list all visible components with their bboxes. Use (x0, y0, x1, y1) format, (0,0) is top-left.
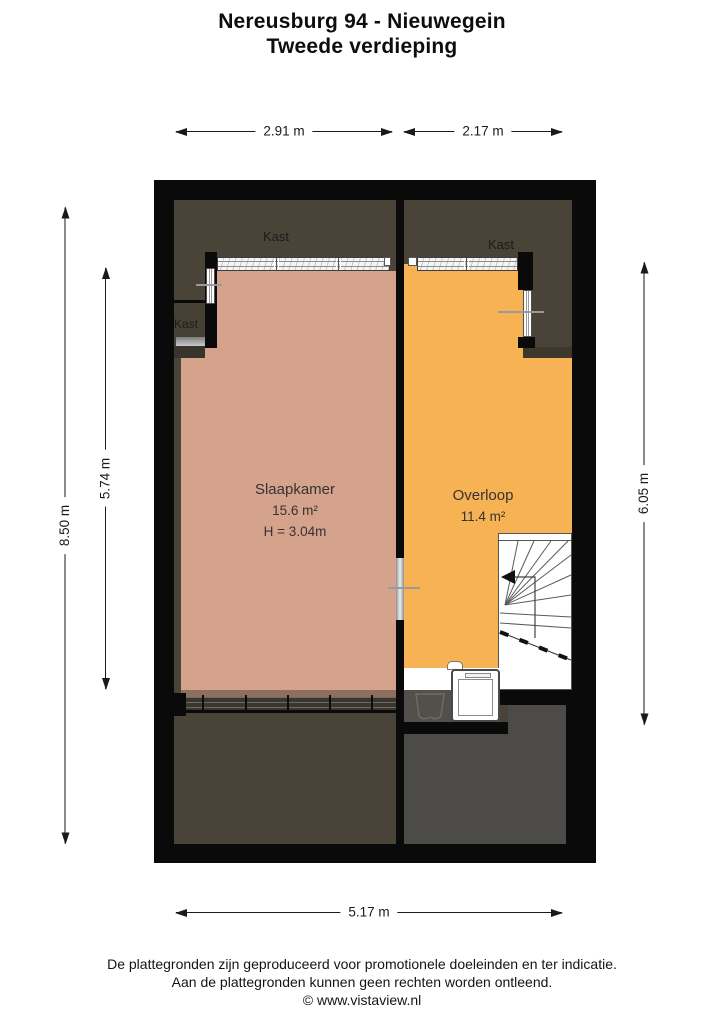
arrow-left-icon (403, 128, 415, 136)
wall-under-niche (404, 722, 508, 734)
arrow-right-icon (551, 128, 563, 136)
page-title-line2: Tweede verdieping (0, 34, 724, 59)
window-mullion (329, 695, 331, 712)
floor-plan: Kast Kast Kast Slaapkamer 15.6 m² H = 3.… (154, 180, 596, 863)
closet-side-left-shadow (174, 346, 205, 358)
arrow-left-icon (175, 128, 187, 136)
floor-plan-interior: Kast Kast Kast Slaapkamer 15.6 m² H = 3.… (174, 200, 572, 844)
knee-wall-window-band (186, 697, 396, 713)
window-mullion (371, 695, 373, 712)
storage-floor-right (508, 705, 566, 844)
closet-door-divider (276, 258, 277, 270)
dimension-label: 2.17 m (454, 124, 511, 139)
closet-strip-end-cap (384, 257, 391, 266)
washing-machine-panel (465, 673, 491, 678)
stairs-drawing (498, 533, 572, 690)
room-overloop-label: Overloop 11.4 m² (403, 486, 563, 527)
dimension-label: 2.91 m (255, 124, 312, 139)
storage-floor-left (404, 734, 508, 844)
roof-edge-shadow (523, 347, 572, 358)
wall-under-stairs (500, 690, 572, 705)
washing-machine (451, 669, 500, 722)
arrow-left-icon (102, 678, 110, 690)
room-ceiling-height: H = 3.04m (215, 521, 375, 542)
footer-copyright: © www.vistaview.nl (0, 991, 724, 1009)
window-mullion (245, 695, 247, 712)
arrow-left-icon (61, 833, 69, 845)
dimension-label: 6.05 m (636, 465, 651, 522)
page-title: Nereusburg 94 - Nieuwegein Tweede verdie… (0, 9, 724, 59)
closet-doors-top-right (417, 257, 518, 271)
inner-wall-right (566, 705, 572, 844)
stairs (498, 533, 572, 690)
dimension-top-right: 2.17 m (403, 123, 563, 140)
closet-top-right-label: Kast (471, 237, 531, 252)
room-area: 11.4 m² (403, 506, 563, 527)
closet-door-divider (466, 258, 467, 270)
arrow-right-icon (551, 909, 563, 917)
arrow-right-icon (61, 207, 69, 219)
room-name: Overloop (403, 486, 563, 506)
dimension-left-inner: 5.74 m (97, 267, 114, 690)
wall-right-upper (518, 252, 533, 290)
room-area: 15.6 m² (215, 500, 375, 521)
arrow-right-icon (102, 267, 110, 279)
arrow-left-icon (640, 714, 648, 726)
door-opening (396, 558, 404, 620)
room-slaapkamer-label: Slaapkamer 15.6 m² H = 3.04m (215, 480, 375, 542)
room-overloop-upper (404, 264, 523, 347)
band-end-cap (174, 693, 186, 716)
dimension-label: 5.17 m (340, 905, 397, 920)
closet-strip-end-cap (408, 257, 417, 266)
window-right (523, 290, 532, 337)
dimension-left-outer: 8.50 m (57, 207, 74, 845)
footer-line1: De plattegronden zijn geproduceerd voor … (0, 955, 724, 973)
door-centre-tick (388, 587, 420, 589)
footer-line2: Aan de plattegronden kunnen geen rechten… (0, 973, 724, 991)
closet-top-left-label: Kast (246, 229, 306, 244)
dimension-label: 5.74 m (98, 450, 113, 507)
closet-door-divider (338, 258, 339, 270)
room-slaapkamer-upper (217, 271, 396, 348)
wall-right-corner (518, 337, 535, 348)
arrow-right-icon (640, 262, 648, 274)
dimension-top-left: 2.91 m (175, 123, 393, 140)
page-title-line1: Nereusburg 94 - Nieuwegein (0, 9, 724, 34)
arrow-left-icon (175, 909, 187, 917)
dimension-right: 6.05 m (636, 262, 653, 726)
closet-side-left-label: Kast (174, 317, 212, 331)
dimension-label: 8.50 m (57, 497, 72, 554)
footer-disclaimer: De plattegronden zijn geproduceerd voor … (0, 955, 724, 1009)
arrow-right-icon (381, 128, 393, 136)
window-left (206, 268, 215, 304)
closet-doors-top-left (217, 257, 390, 271)
window-mullion (287, 695, 289, 712)
dimension-bottom: 5.17 m (175, 904, 563, 921)
window-mullion (202, 695, 204, 712)
page: { "title": { "line1": "Nereusburg 94 - N… (0, 0, 724, 1024)
room-name: Slaapkamer (215, 480, 375, 500)
sink (412, 692, 448, 723)
closet-side-left-door (176, 337, 205, 346)
window-right-tick (498, 311, 544, 313)
window-left-tick (196, 284, 222, 286)
washing-machine-door (458, 679, 493, 716)
